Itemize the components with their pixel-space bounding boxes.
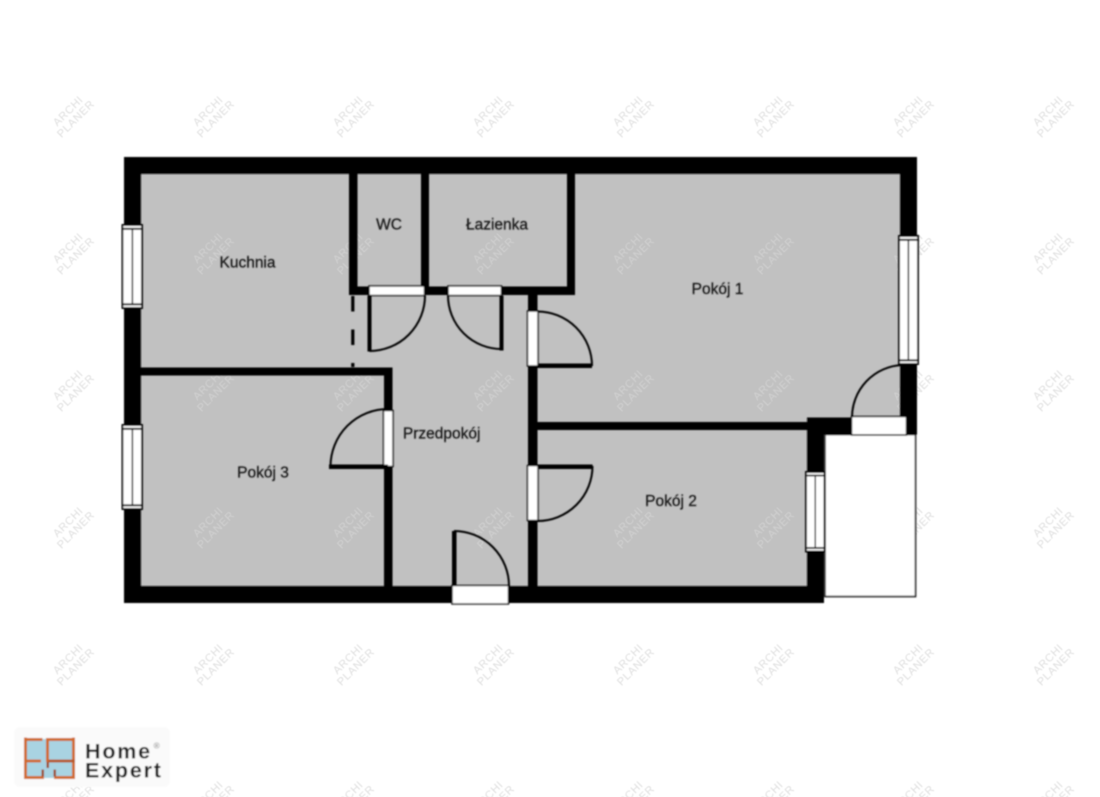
- svg-text:Pokój 3: Pokój 3: [237, 465, 289, 482]
- svg-text:Expert: Expert: [85, 759, 163, 783]
- svg-text:WC: WC: [376, 217, 402, 234]
- svg-text:®: ®: [154, 741, 161, 751]
- svg-text:Pokój 1: Pokój 1: [692, 281, 744, 298]
- svg-text:Łazienka: Łazienka: [466, 217, 528, 234]
- svg-text:Pokój 2: Pokój 2: [645, 493, 697, 510]
- svg-text:Przedpokój: Przedpokój: [403, 426, 481, 443]
- svg-text:Kuchnia: Kuchnia: [219, 255, 275, 272]
